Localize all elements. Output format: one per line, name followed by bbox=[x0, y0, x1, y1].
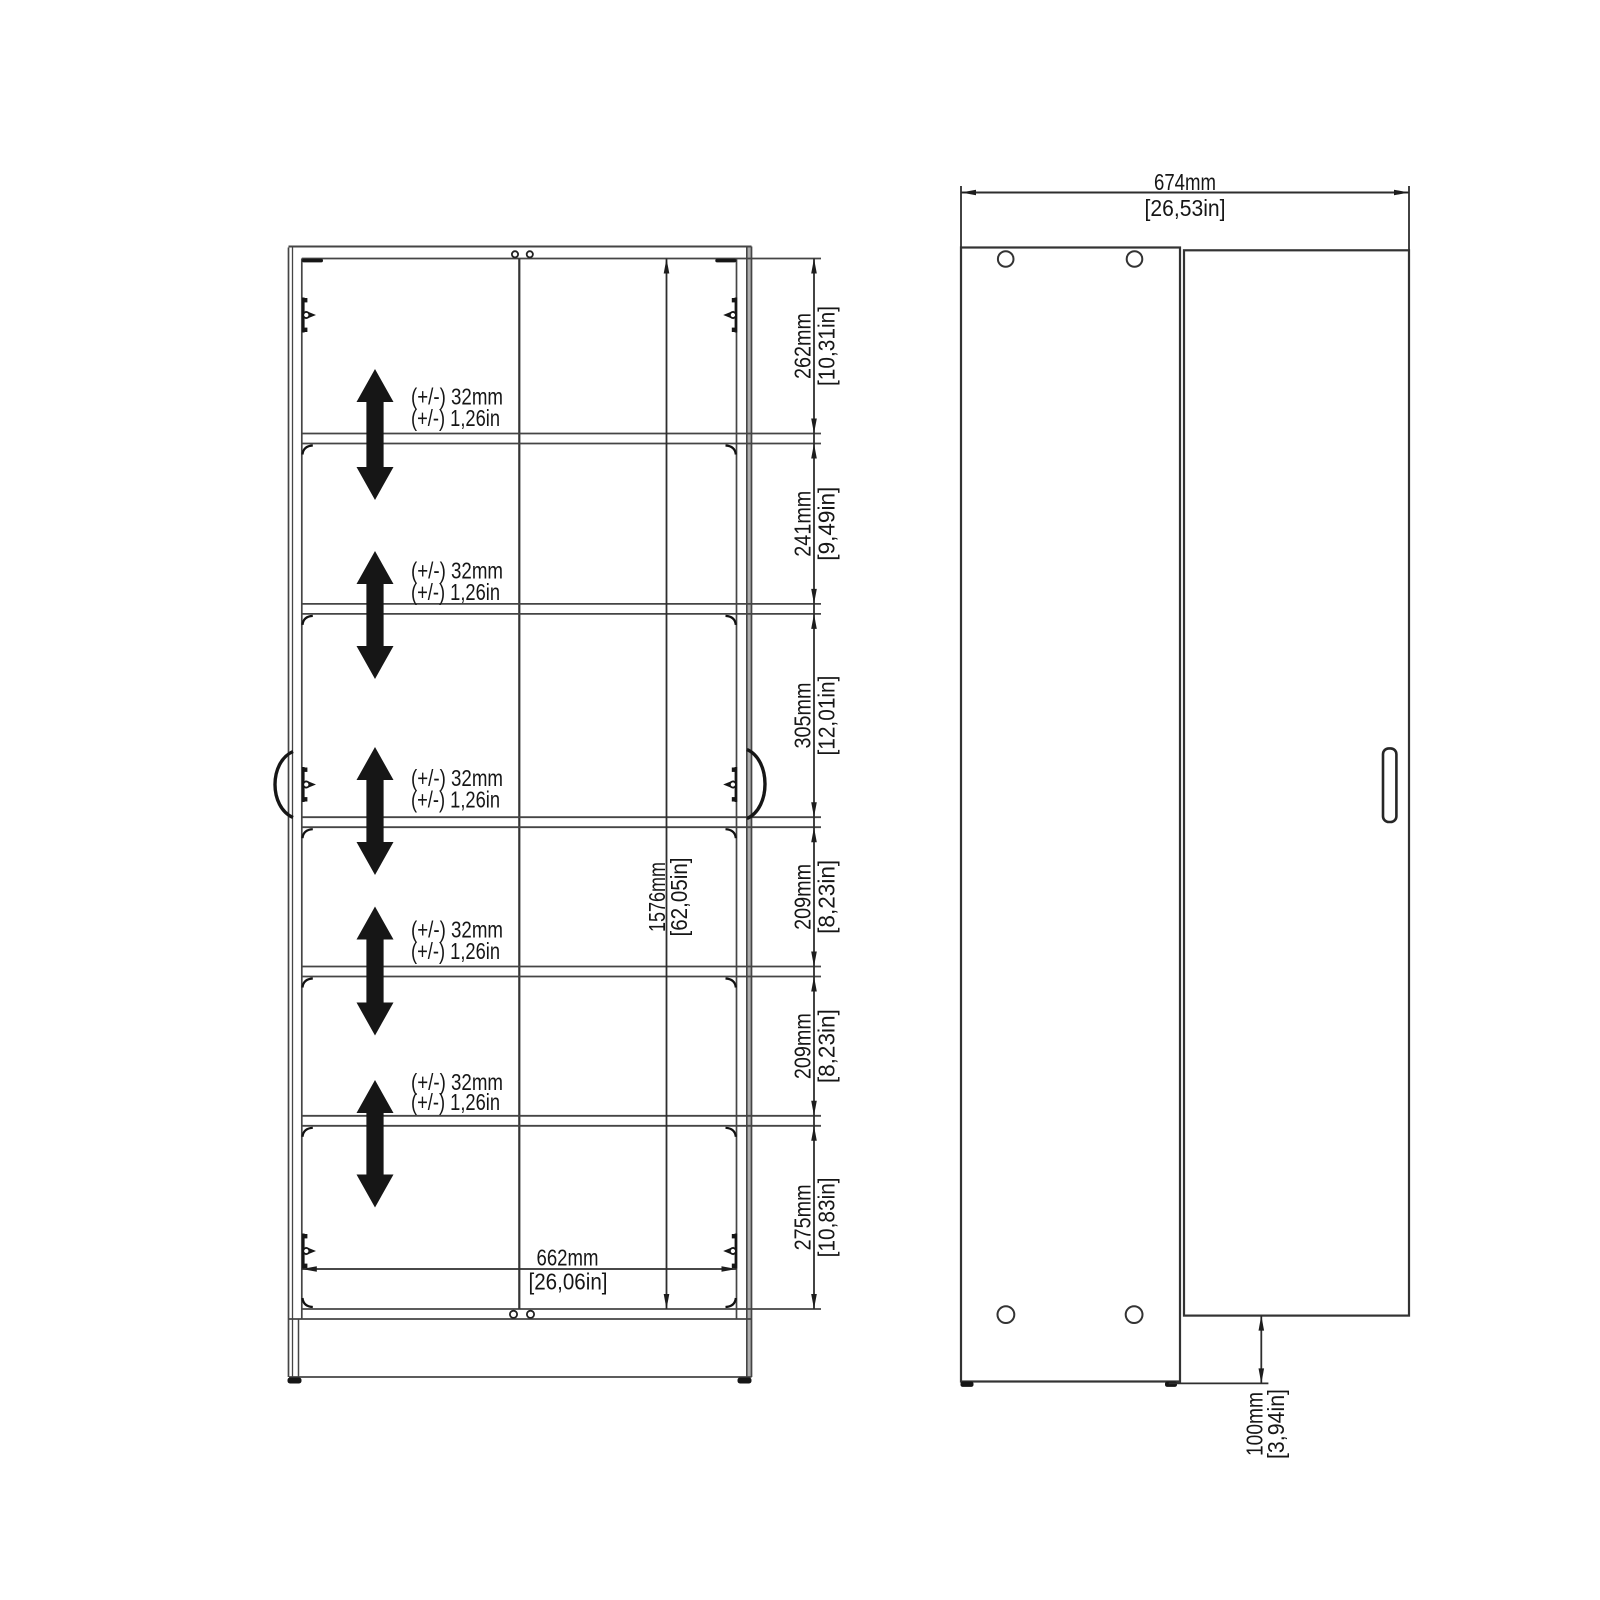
svg-text:662mm: 662mm bbox=[537, 1245, 599, 1271]
svg-text:(+/-) 1,26in: (+/-) 1,26in bbox=[411, 938, 500, 964]
svg-text:(+/-) 1,26in: (+/-) 1,26in bbox=[411, 405, 500, 431]
svg-text:305mm: 305mm bbox=[790, 683, 816, 749]
svg-text:[26,53in]: [26,53in] bbox=[1145, 195, 1226, 221]
svg-text:[12,01in]: [12,01in] bbox=[814, 676, 840, 756]
svg-text:[10,31in]: [10,31in] bbox=[814, 306, 840, 386]
svg-text:275mm: 275mm bbox=[790, 1184, 816, 1250]
svg-text:674mm: 674mm bbox=[1154, 169, 1216, 195]
svg-text:(+/-) 1,26in: (+/-) 1,26in bbox=[411, 787, 500, 813]
svg-text:(+/-) 1,26in: (+/-) 1,26in bbox=[411, 1089, 500, 1115]
svg-text:241mm: 241mm bbox=[790, 491, 816, 557]
svg-text:[26,06in]: [26,06in] bbox=[529, 1269, 608, 1295]
svg-text:[10,83in]: [10,83in] bbox=[814, 1177, 840, 1257]
svg-text:(+/-) 1,26in: (+/-) 1,26in bbox=[411, 579, 500, 605]
svg-text:209mm: 209mm bbox=[790, 864, 816, 930]
svg-text:[8,23in]: [8,23in] bbox=[814, 860, 840, 934]
svg-text:[62,05in]: [62,05in] bbox=[666, 858, 692, 937]
svg-text:[3,94in]: [3,94in] bbox=[1263, 1389, 1289, 1459]
svg-text:262mm: 262mm bbox=[790, 313, 816, 379]
svg-text:[8,23in]: [8,23in] bbox=[814, 1009, 840, 1083]
svg-text:[9,49in]: [9,49in] bbox=[814, 487, 840, 561]
svg-text:209mm: 209mm bbox=[790, 1013, 816, 1079]
